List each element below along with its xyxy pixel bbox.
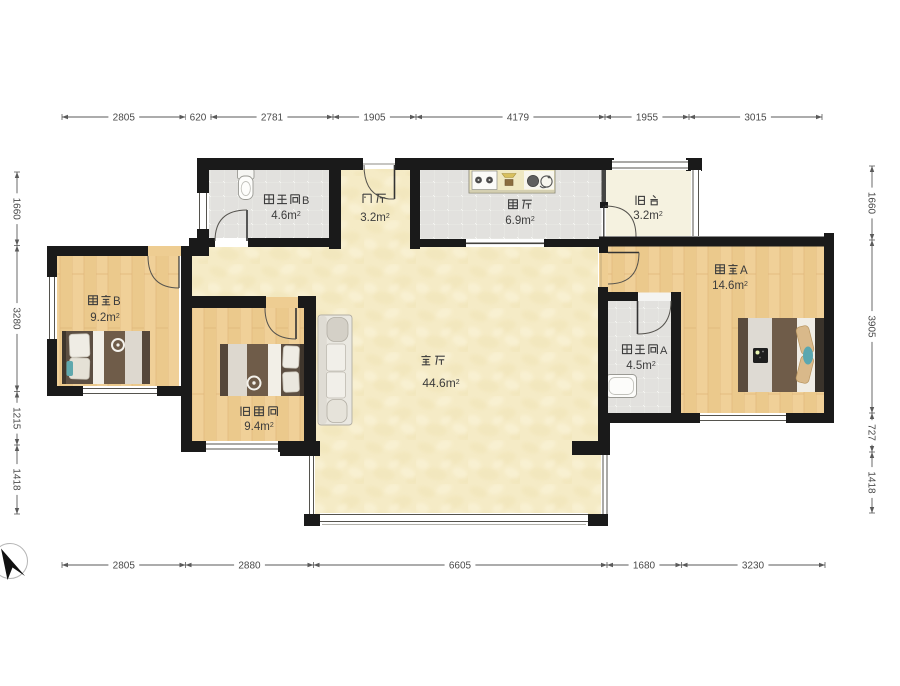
svg-text:1215: 1215 (11, 407, 22, 430)
svg-text:9.4m2: 9.4m2 (244, 421, 274, 433)
svg-text:3.2m2: 3.2m2 (633, 210, 663, 222)
svg-text:1905: 1905 (363, 113, 386, 124)
svg-text:9.2m2: 9.2m2 (90, 312, 120, 324)
svg-text:6.9m2: 6.9m2 (505, 215, 535, 227)
svg-text:1418: 1418 (11, 468, 22, 491)
svg-text:727: 727 (866, 424, 877, 441)
svg-text:2880: 2880 (238, 561, 261, 572)
svg-text:3015: 3015 (744, 113, 767, 124)
svg-text:2781: 2781 (261, 113, 284, 124)
svg-text:1955: 1955 (636, 113, 659, 124)
svg-text:1680: 1680 (633, 561, 656, 572)
svg-text:2805: 2805 (113, 113, 136, 124)
svg-text:4.6m2: 4.6m2 (271, 210, 301, 222)
svg-text:A: A (660, 345, 668, 357)
svg-text:14.6m2: 14.6m2 (712, 280, 748, 292)
svg-text:1418: 1418 (866, 471, 877, 494)
svg-text:3280: 3280 (11, 307, 22, 330)
svg-text:3905: 3905 (866, 315, 877, 338)
svg-text:4.5m2: 4.5m2 (626, 360, 656, 372)
svg-text:A: A (740, 265, 748, 277)
svg-text:3.2m2: 3.2m2 (360, 212, 390, 224)
svg-text:6605: 6605 (449, 561, 472, 572)
svg-text:44.6m2: 44.6m2 (422, 376, 459, 390)
svg-text:B: B (302, 195, 309, 207)
svg-text:2805: 2805 (113, 561, 136, 572)
svg-text:4179: 4179 (507, 113, 530, 124)
svg-text:1660: 1660 (866, 192, 877, 215)
svg-text:3230: 3230 (742, 561, 765, 572)
svg-text:B: B (113, 296, 121, 308)
svg-text:1660: 1660 (11, 198, 22, 221)
svg-text:620: 620 (190, 113, 207, 124)
